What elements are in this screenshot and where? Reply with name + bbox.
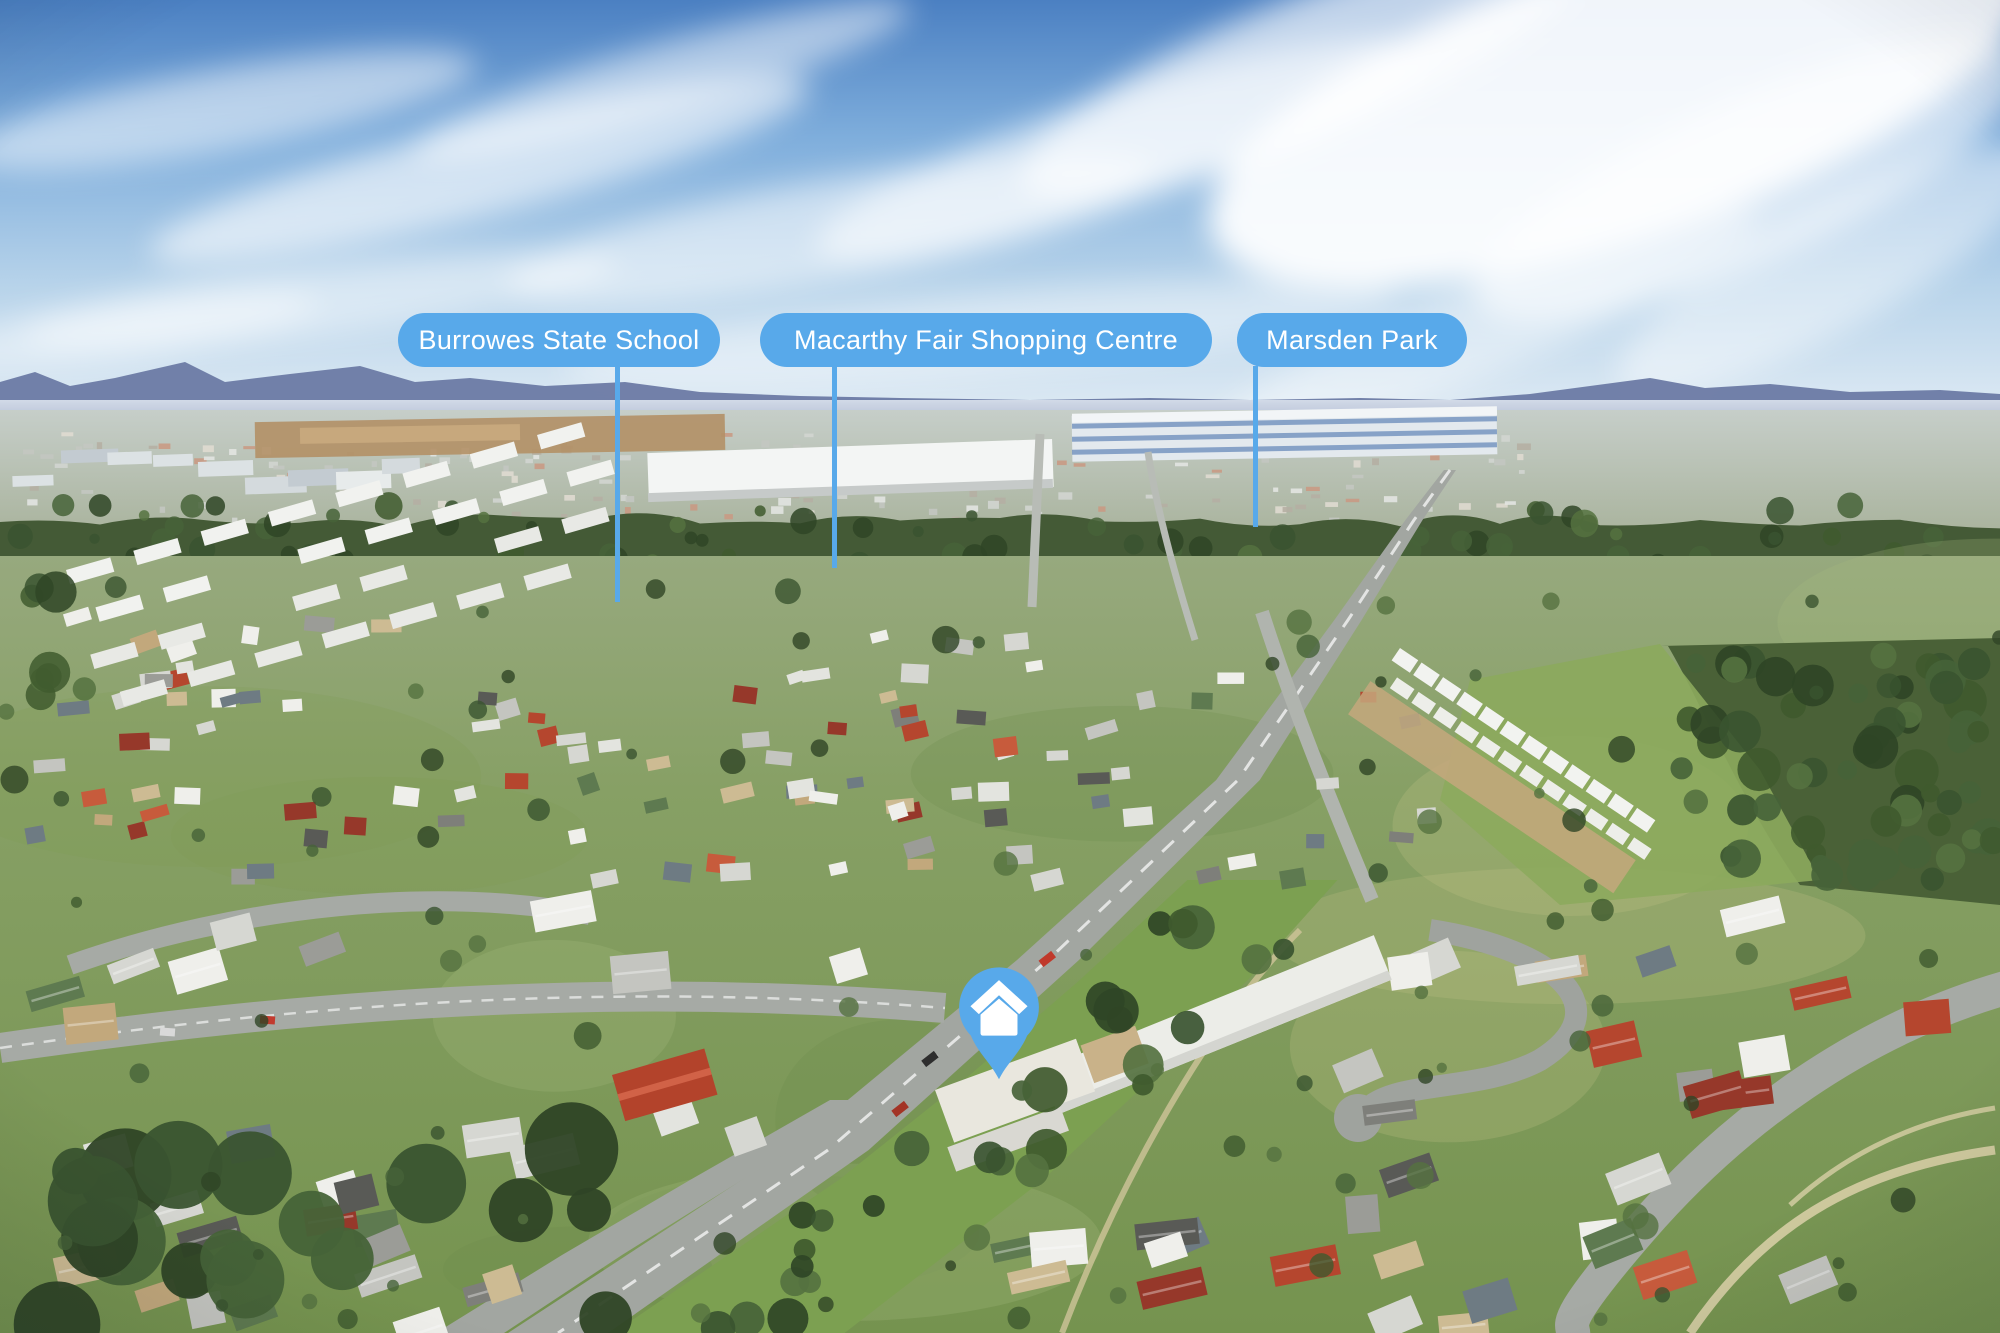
label-leader-line (1253, 366, 1258, 527)
location-label-text: Macarthy Fair Shopping Centre (794, 325, 1178, 356)
property-marker-pin (957, 964, 1041, 1082)
aerial-photo-stage: Burrowes State School Macarthy Fair Shop… (0, 0, 2000, 1333)
location-label-text: Burrowes State School (419, 325, 700, 356)
label-leader-line (832, 366, 837, 568)
location-label-marsden-park: Marsden Park (1237, 313, 1467, 367)
location-label-macarthy-fair-shopping-centre: Macarthy Fair Shopping Centre (760, 313, 1212, 367)
aerial-photo (0, 0, 2000, 1333)
location-label-burrowes-state-school: Burrowes State School (398, 313, 720, 367)
label-leader-line (615, 366, 620, 602)
location-label-text: Marsden Park (1266, 325, 1438, 356)
vignette (0, 0, 2000, 1333)
